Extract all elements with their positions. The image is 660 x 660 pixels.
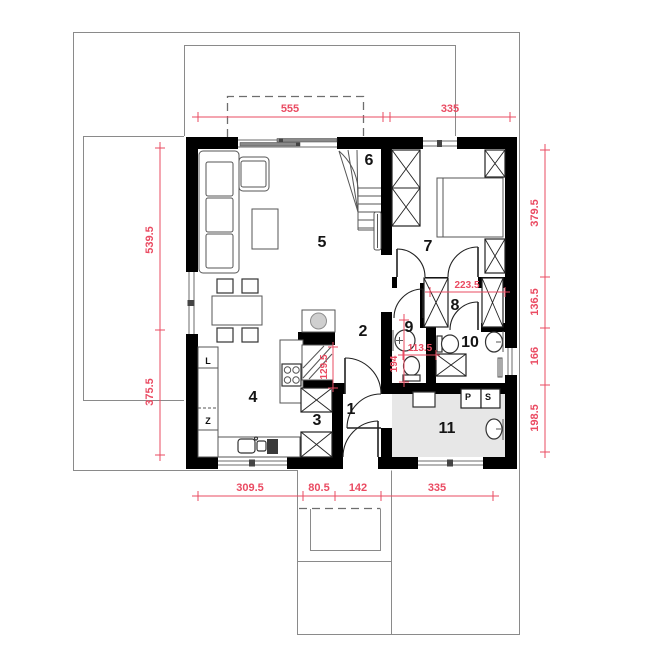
wardrobe-hall-top [301, 388, 332, 412]
front-door [343, 421, 378, 457]
coffee-table [252, 209, 278, 249]
shower-box [436, 354, 466, 376]
room-label-8: 8 [451, 297, 460, 314]
utility-cabinet [413, 392, 435, 407]
dim-198-5: 198.5 [529, 404, 541, 432]
bedroom-window [423, 140, 457, 147]
hall-door [345, 358, 381, 394]
bathroom-toilet-icon [437, 335, 459, 353]
left-terrace-outline [84, 137, 185, 401]
kitchen-window [218, 460, 287, 467]
cooktop-island [280, 340, 303, 403]
wardrobe-bedroom-left [392, 150, 420, 226]
dining-window [188, 272, 195, 334]
floor-plan-canvas: 555 335 539.5 375.5 379.5 136.5 166 198.… [0, 0, 660, 660]
dim-136-5: 136.5 [529, 288, 541, 316]
bathroom-sink-icon [486, 331, 504, 352]
dishwasher-label: Z [205, 416, 211, 426]
room-label-1: 1 [347, 401, 356, 418]
room-label-9: 9 [405, 319, 414, 336]
dim-223-5: 223.5 [454, 280, 479, 291]
utility-window [418, 460, 483, 467]
radiator-hall [374, 212, 381, 250]
dim-142: 142 [349, 482, 367, 494]
dim-80-5: 80.5 [308, 482, 329, 494]
terrace-slider-window [238, 139, 337, 148]
radiator-bathroom [498, 358, 502, 377]
boiler-nook [302, 310, 335, 332]
wardrobe-closet-right [482, 278, 503, 327]
bedroom-door [397, 249, 425, 277]
drainer [267, 439, 278, 454]
dim-309-5: 309.5 [236, 482, 264, 494]
dim-555: 555 [281, 103, 299, 115]
wardrobe-hall-bottom [301, 432, 332, 457]
dim-375-5: 375.5 [144, 378, 156, 406]
dim-166: 166 [529, 347, 541, 365]
dim-129-5: 129.5 [319, 354, 330, 379]
wc-door [394, 289, 423, 318]
dim-194: 194 [389, 355, 400, 372]
room-label-10: 10 [461, 334, 479, 351]
washer-label: P [465, 392, 471, 402]
wc-toilet-icon [403, 357, 420, 382]
wardrobe-bedroom-bottom-right [485, 239, 505, 273]
dim-335-top: 335 [441, 103, 459, 115]
dining-set [212, 279, 262, 342]
room-label-6: 6 [365, 152, 374, 169]
room-label-3: 3 [313, 412, 322, 429]
room-label-5: 5 [318, 234, 327, 251]
floor-plan-svg: 555 335 539.5 375.5 379.5 136.5 166 198.… [0, 0, 660, 660]
room-label-2: 2 [359, 323, 368, 340]
bed [437, 178, 503, 237]
bathroom-window [508, 348, 512, 375]
fridge-label: L [205, 356, 211, 366]
top-terrace-outline [185, 46, 456, 137]
dryer-label: S [485, 392, 491, 402]
room-label-7: 7 [424, 238, 433, 255]
wardrobe-closet-left [424, 278, 448, 327]
dim-379-5: 379.5 [529, 199, 541, 227]
room-label-4: 4 [249, 389, 258, 406]
dim-335-bottom: 335 [428, 482, 446, 494]
room-label-11: 11 [439, 420, 456, 437]
site-outline [74, 33, 520, 635]
dim-539-5: 539.5 [144, 226, 156, 254]
wardrobe-bedroom-top-right [485, 150, 505, 177]
closet-door [448, 247, 478, 277]
dim-113-5: 113.5 [408, 343, 433, 354]
